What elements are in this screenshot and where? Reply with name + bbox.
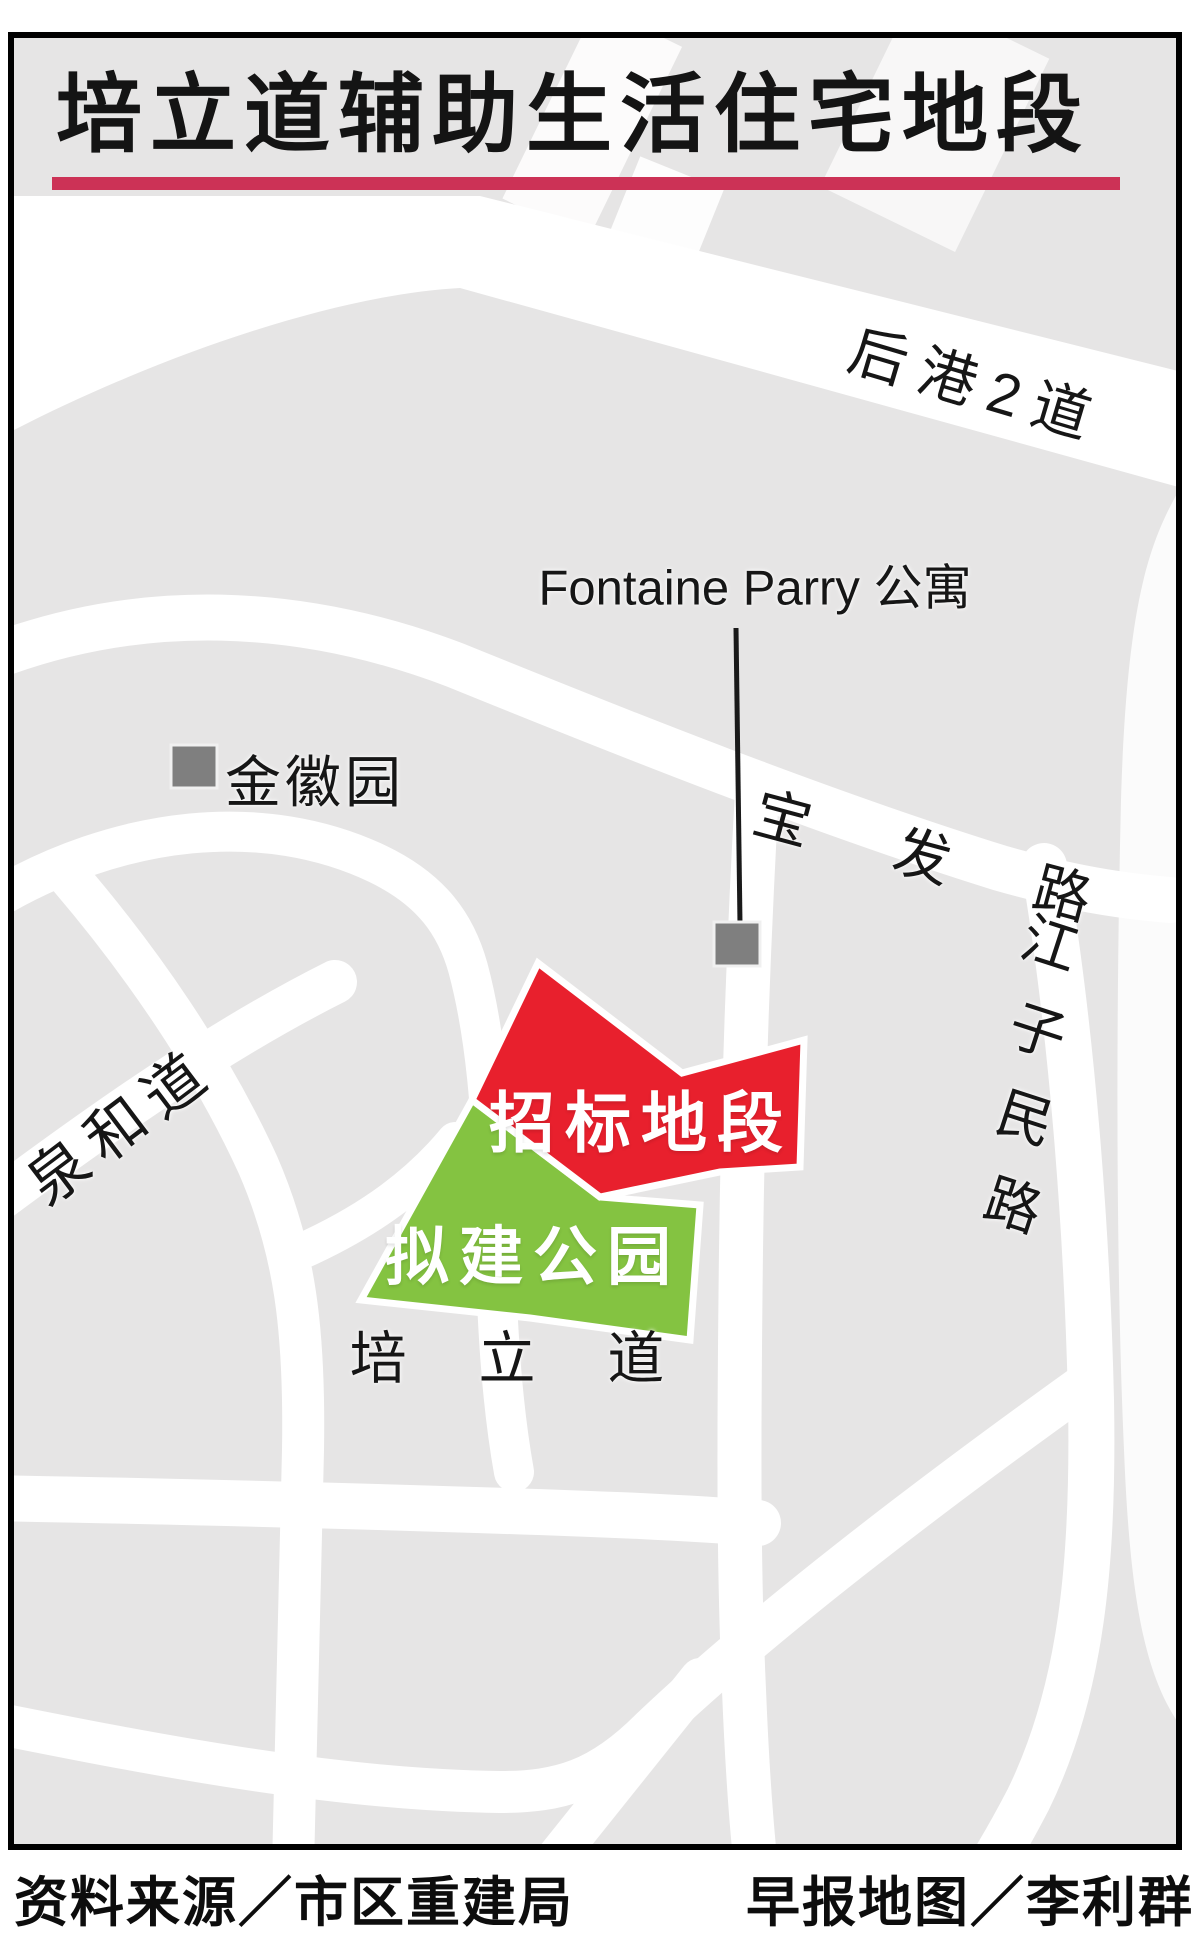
road-label-peili: 培 立 道 [350,1313,693,1395]
jinhui-marker [171,745,217,788]
source-note: 资料来源／市区重建局 [14,1858,574,1937]
tender-site-label: 招标地段 [489,1070,793,1166]
map-infographic: 培立道辅助生活住宅地段 后港2道 宝 发 路 泉和道 培 立 道 江 子 民 路… [0,0,1200,1940]
road-peili [0,1498,758,1523]
poi-label-fontaine: Fontaine Parry 公寓 [539,549,972,620]
credit-note: 早报地图／李利群 [746,1858,1194,1937]
poi-label-jinhui: 金徽园 [225,738,405,819]
title-underline [52,177,1120,190]
fontaine-marker [714,922,760,966]
page-title: 培立道辅助生活住宅地段 [56,44,1090,169]
park-label: 拟建公园 [385,1206,681,1298]
